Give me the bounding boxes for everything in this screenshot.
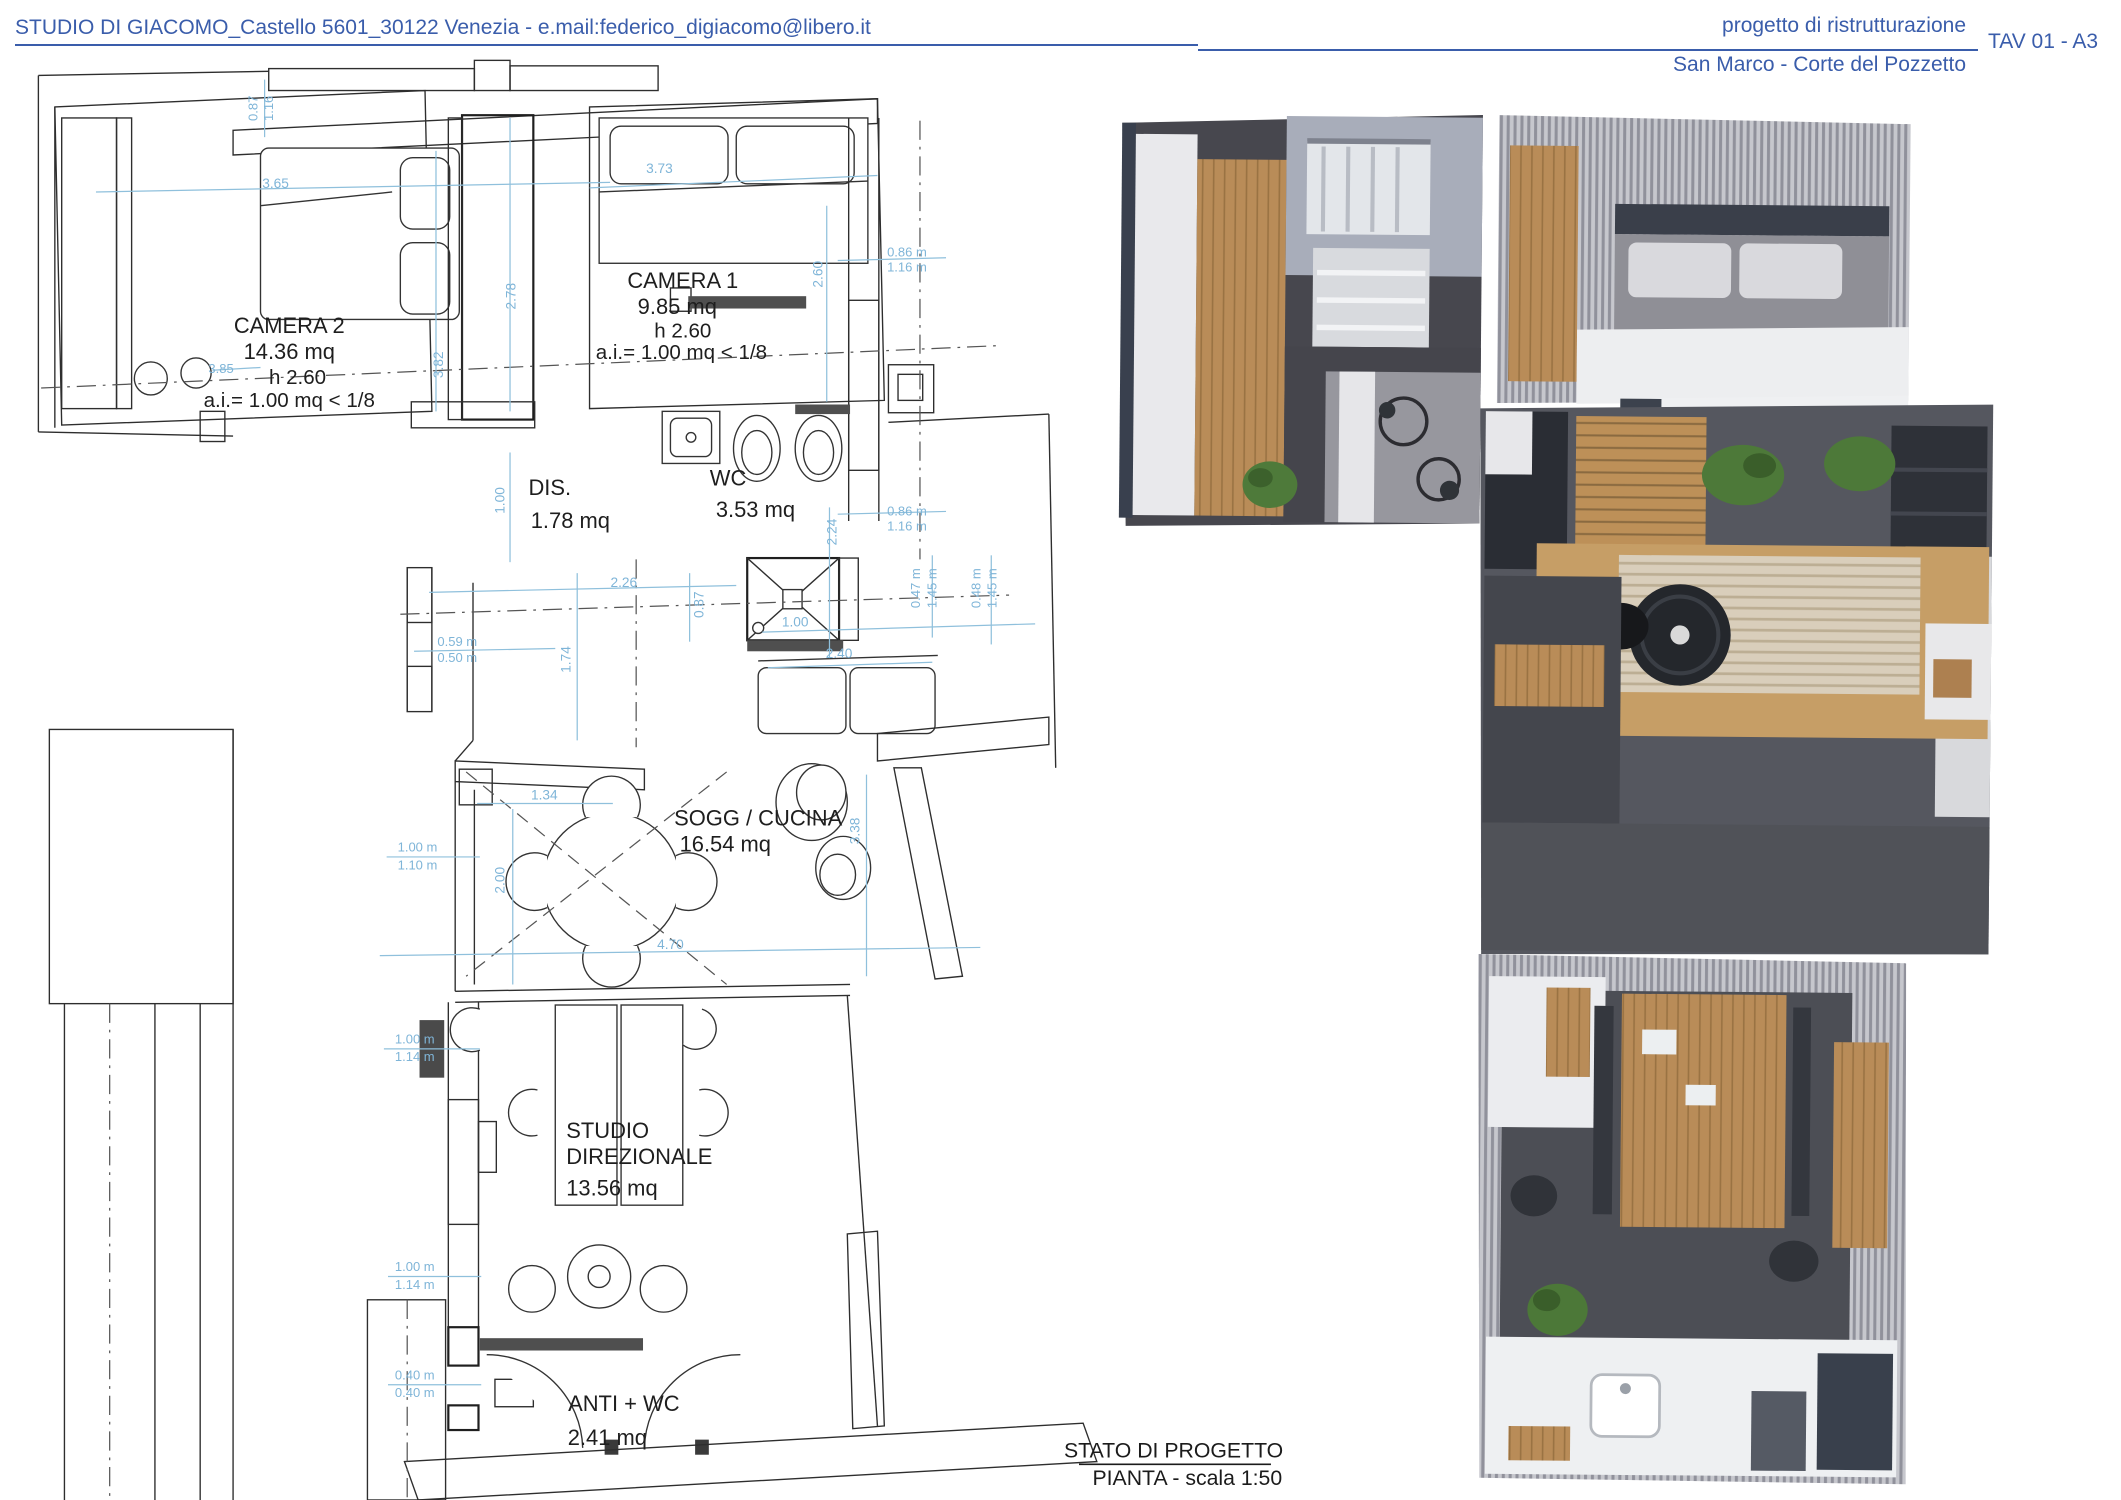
dim: 1.14 m [395, 1277, 435, 1292]
dim: 1.16 m [887, 519, 927, 534]
room-height: h 2.60 [654, 319, 711, 342]
dim: 2.26 [610, 575, 637, 590]
chair [1510, 1175, 1557, 1217]
shower [747, 558, 858, 651]
dim: 1.00 [493, 487, 508, 514]
render-bedroom2 [1119, 112, 1483, 529]
room-name: ANTI + WC [568, 1391, 679, 1416]
dim: 1.00 m [395, 1031, 435, 1046]
room-studio [420, 984, 885, 1428]
floor-plan-2d: 3.65 3.73 0.87 1.16 2.78 3.82 3.85 0.86 … [38, 60, 1283, 1500]
room-ai: a.i.= 1.00 mq < 1/8 [596, 341, 767, 364]
dim: 1.14 m [395, 1049, 435, 1064]
room-name: WC [710, 465, 747, 490]
bed-camera2 [260, 148, 459, 319]
dim: 2.78 [504, 282, 519, 309]
deck-areas [49, 729, 445, 1500]
room-ai: a.i.= 1.00 mq < 1/8 [204, 389, 375, 412]
render-studio [1474, 954, 1910, 1484]
parapet-outline [38, 60, 658, 90]
chair [506, 853, 547, 911]
dim: 3.38 [848, 817, 863, 844]
dim: 0.87 [691, 591, 706, 618]
room-area: 16.54 mq [680, 831, 771, 856]
room-name: DIREZIONALE [566, 1144, 712, 1169]
room-name: CAMERA 1 [627, 268, 738, 293]
room-name: DIS. [528, 475, 571, 500]
room-area: 3.53 mq [716, 497, 795, 522]
dim: 4.70 [657, 937, 684, 952]
dim: 1.16 m [887, 260, 927, 275]
dim: 0.40 m [395, 1385, 435, 1400]
stool [134, 362, 167, 395]
pouf [509, 1266, 556, 1313]
plant [1527, 1284, 1588, 1337]
room-area: 9.85 mq [638, 294, 717, 319]
sink [662, 411, 720, 463]
dim: 2.40 [826, 646, 853, 661]
caption-title: STATO DI PROGETTO [1064, 1438, 1283, 1462]
room-area: 13.56 mq [566, 1176, 657, 1201]
chair [583, 776, 641, 817]
chair [676, 853, 717, 911]
render-bedroom1 [1497, 115, 1911, 406]
drawing-sheet: STUDIO DI GIACOMO_Castello 5601_30122 Ve… [0, 0, 2121, 1500]
caption-scale: PIANTA - scala 1:50 [1092, 1466, 1282, 1490]
dim: 1.16 [261, 96, 276, 121]
render-views [1110, 112, 1995, 1485]
room-name: CAMERA 2 [234, 313, 345, 338]
dim: 0.59 m [437, 634, 477, 649]
desk-chair [450, 1008, 480, 1052]
plan-canvas: 3.65 3.73 0.87 1.16 2.78 3.82 3.85 0.86 … [0, 0, 2121, 1500]
stairs [1575, 416, 1707, 561]
dim: 2.00 [493, 867, 508, 894]
dim: 1.45 m [985, 568, 1000, 608]
dim: 0.87 [246, 96, 261, 121]
dim: 0.48 m [968, 568, 983, 608]
dim: 3.82 [431, 351, 446, 378]
desk-chair [683, 1009, 716, 1049]
dim: 1.10 m [398, 857, 438, 872]
desk-table [1620, 994, 1787, 1229]
room-name: STUDIO [566, 1118, 649, 1143]
room-area: 14.36 mq [244, 339, 335, 364]
desk-chair [509, 1089, 538, 1136]
room-name: SOGG / CUCINA [674, 805, 842, 830]
dim: 1.00 m [395, 1259, 435, 1274]
dim: 2.24 [824, 518, 839, 545]
wardrobe-camera2 [62, 118, 117, 409]
dim: 1.00 m [398, 839, 438, 854]
dim: 1.34 [531, 787, 558, 802]
dim: 1.74 [558, 646, 573, 673]
room-height: h 2.60 [269, 366, 326, 389]
dim: 0.40 m [395, 1367, 435, 1382]
room-area: 2.41 mq [568, 1425, 647, 1450]
sofa [1890, 426, 1987, 557]
dim: 0.86 m [887, 244, 927, 259]
room-area: 1.78 mq [531, 508, 610, 533]
dim: 3.85 [208, 361, 233, 376]
caption-block: STATO DI PROGETTO PIANTA - scala 1:50 [1064, 1438, 1283, 1489]
dim: 1.45 m [924, 568, 939, 608]
dim: 2.60 [811, 261, 826, 288]
render-living-kitchen [1476, 400, 1994, 958]
dim: 3.65 [262, 176, 289, 191]
pouf [640, 1266, 687, 1313]
bottom-wall [404, 1423, 1096, 1500]
desk-chair [699, 1089, 728, 1136]
dim: 1.00 [782, 615, 809, 630]
dim: 0.50 m [437, 650, 477, 665]
shaft-box [888, 365, 933, 413]
right-wall-hatch [849, 300, 879, 470]
dim: 3.73 [646, 161, 673, 176]
dim: 0.86 m [887, 504, 927, 519]
dim: 0.47 m [908, 568, 923, 608]
stool [181, 358, 211, 388]
bed-camera1 [599, 118, 868, 263]
